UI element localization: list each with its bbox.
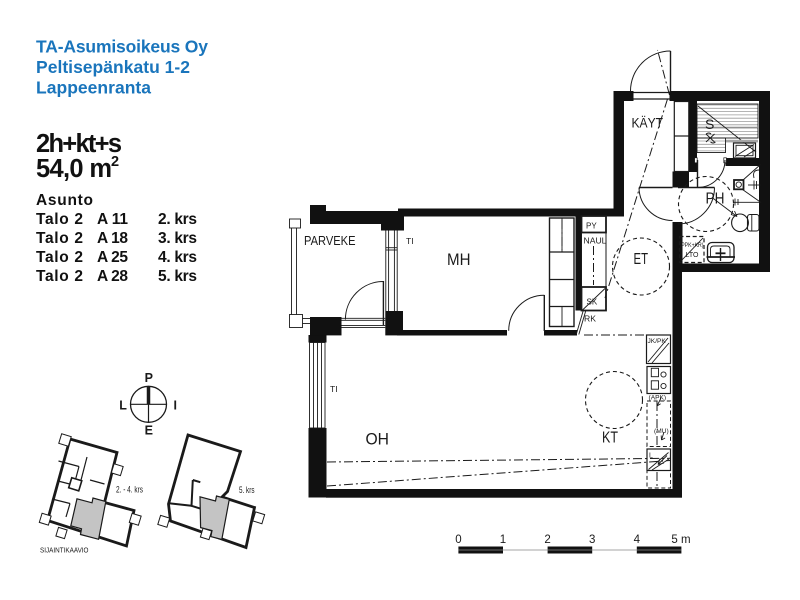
svg-text:5. krs: 5. krs: [158, 268, 197, 285]
svg-text:SIJAINTIKAAVIO: SIJAINTIKAAVIO: [40, 546, 89, 555]
svg-text:2: 2: [111, 154, 119, 170]
svg-text:TI: TI: [406, 236, 414, 246]
svg-text:Peltisepänkatu 1-2: Peltisepänkatu 1-2: [36, 57, 190, 77]
svg-text:54,0 m: 54,0 m: [36, 155, 112, 183]
svg-text:S: S: [705, 116, 714, 132]
svg-text:E: E: [145, 424, 153, 438]
svg-text:A 11: A 11: [97, 211, 128, 228]
svg-text:2h+kt+s: 2h+kt+s: [36, 130, 122, 158]
svg-text:ET: ET: [634, 251, 649, 268]
svg-text:A 25: A 25: [97, 249, 128, 266]
svg-text:1: 1: [500, 534, 506, 546]
svg-text:Talo 2: Talo 2: [36, 249, 83, 266]
svg-text:0: 0: [455, 534, 461, 546]
svg-text:4. krs: 4. krs: [158, 249, 197, 266]
svg-text:L: L: [649, 453, 653, 460]
svg-text:Asunto: Asunto: [36, 192, 93, 209]
svg-text:OH: OH: [366, 430, 390, 449]
svg-text:TI: TI: [330, 384, 338, 394]
svg-text:3. krs: 3. krs: [158, 230, 197, 247]
svg-text:PARVEKE: PARVEKE: [304, 234, 356, 248]
svg-text:P: P: [145, 371, 153, 385]
svg-text:L: L: [119, 398, 127, 412]
svg-text:A 28: A 28: [97, 268, 128, 285]
svg-text:KT: KT: [602, 430, 618, 447]
svg-text:A 18: A 18: [97, 230, 128, 247]
svg-text:TA-Asumisoikeus Oy: TA-Asumisoikeus Oy: [36, 37, 208, 57]
svg-text:2. - 4. krs: 2. - 4. krs: [116, 485, 143, 495]
svg-text:2: 2: [544, 534, 550, 546]
svg-text:LTO: LTO: [686, 250, 699, 259]
svg-text:PY: PY: [586, 222, 597, 231]
svg-text:Lappeenranta: Lappeenranta: [36, 78, 151, 98]
svg-text:NAUL: NAUL: [584, 236, 607, 246]
svg-text:Talo 2: Talo 2: [36, 268, 83, 285]
svg-text:4: 4: [634, 534, 641, 546]
svg-text:RK: RK: [584, 314, 596, 324]
svg-text:5. krs: 5. krs: [239, 485, 255, 495]
svg-text:Talo 2: Talo 2: [36, 211, 83, 228]
svg-text:5 m: 5 m: [671, 534, 690, 546]
svg-text:(MU): (MU): [654, 428, 669, 435]
svg-text:Talo 2: Talo 2: [36, 230, 83, 247]
svg-text:MH: MH: [447, 250, 471, 269]
svg-text:I: I: [173, 398, 176, 412]
svg-text:(PPK+KR): (PPK+KR): [680, 242, 704, 249]
svg-text:3: 3: [589, 534, 595, 546]
svg-text:2. krs: 2. krs: [158, 211, 197, 228]
